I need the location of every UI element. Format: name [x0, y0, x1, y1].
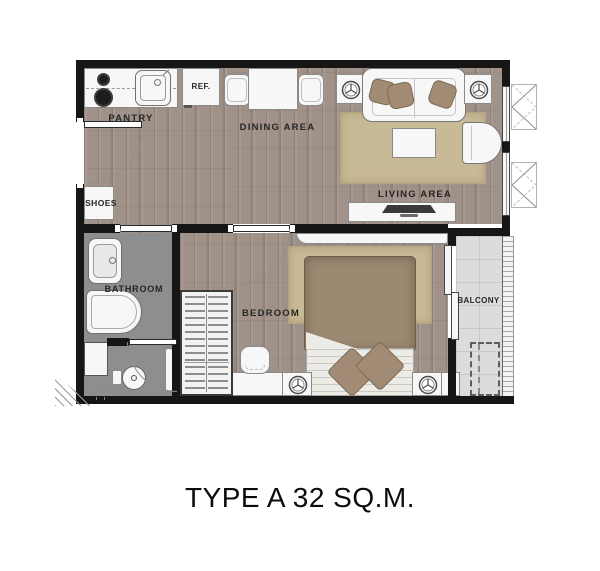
room-label-shoes: SHOES: [76, 198, 126, 208]
decor-lamp-icon: [417, 374, 439, 396]
wall-left: [76, 60, 84, 122]
decor-plant-icon: [340, 79, 362, 101]
door-jamb: [290, 225, 295, 232]
dining-table: [248, 68, 298, 110]
side-table: [336, 74, 364, 104]
door-jamb: [172, 225, 177, 232]
hatch-tick: [104, 380, 105, 400]
room-label-living: LIVING AREA: [375, 189, 455, 200]
room-label-bedroom: BEDROOM: [234, 308, 308, 319]
shaft-box: [84, 342, 108, 376]
balcony-railing: [502, 236, 514, 396]
armchair: [462, 122, 502, 164]
wall-left: [76, 184, 84, 404]
sliding-door-panel: [444, 245, 452, 295]
nightstand: [282, 372, 312, 396]
wall-mid: [172, 224, 233, 233]
window-glazing: [502, 152, 510, 216]
tv-stand: [400, 214, 418, 217]
kitchen-sink-icon: [135, 70, 171, 106]
tv-icon: [382, 205, 436, 213]
room-label-pantry: PANTRY: [96, 113, 166, 124]
refrigerator: REF.: [182, 68, 220, 106]
room-label-bathroom: BATHROOM: [92, 284, 176, 294]
refrigerator-label: REF.: [183, 82, 219, 91]
wardrobe-hangers: [208, 296, 228, 390]
door-jamb: [77, 184, 83, 188]
room-label-balcony: BALCONY: [455, 296, 502, 305]
curtain-pelmet: [296, 233, 448, 244]
wall-bottom: [76, 396, 514, 404]
casement-window-icon: [511, 84, 537, 130]
casement-window-icon: [511, 162, 537, 208]
bathtub: [86, 290, 142, 334]
stove-burner-icon: [97, 73, 110, 86]
wardrobe-hangers: [185, 296, 205, 390]
plan-title: TYPE A 32 SQ.M.: [0, 482, 600, 514]
hatch-tick: [96, 380, 97, 400]
wall-right-post: [502, 68, 510, 86]
wardrobe: [180, 290, 233, 396]
pouf-stool: [240, 346, 270, 374]
coffee-table: [392, 128, 436, 158]
dining-chair: [298, 74, 324, 106]
room-label-dining: DINING AREA: [230, 122, 325, 133]
wall-balcony-top: [448, 228, 510, 236]
dining-chair: [224, 74, 250, 106]
ac-unit-outline: [470, 342, 500, 396]
wall-mid: [290, 224, 448, 233]
nightstand: [412, 372, 442, 396]
bathroom-sink: [88, 238, 122, 284]
floor-plan: REF.: [0, 0, 600, 571]
decor-plant-icon: [468, 79, 490, 101]
door-jamb: [77, 118, 83, 122]
toilet-tank: [112, 370, 122, 385]
wall-bedroom-balcony: [448, 338, 456, 396]
side-table: [464, 74, 492, 104]
wall-top: [76, 60, 510, 68]
decor-lamp-icon: [287, 374, 309, 396]
wall-right-post: [502, 142, 510, 152]
wall-toilet-divider: [107, 338, 129, 346]
window-glazing: [502, 86, 510, 142]
stove-burner-icon: [94, 88, 113, 107]
